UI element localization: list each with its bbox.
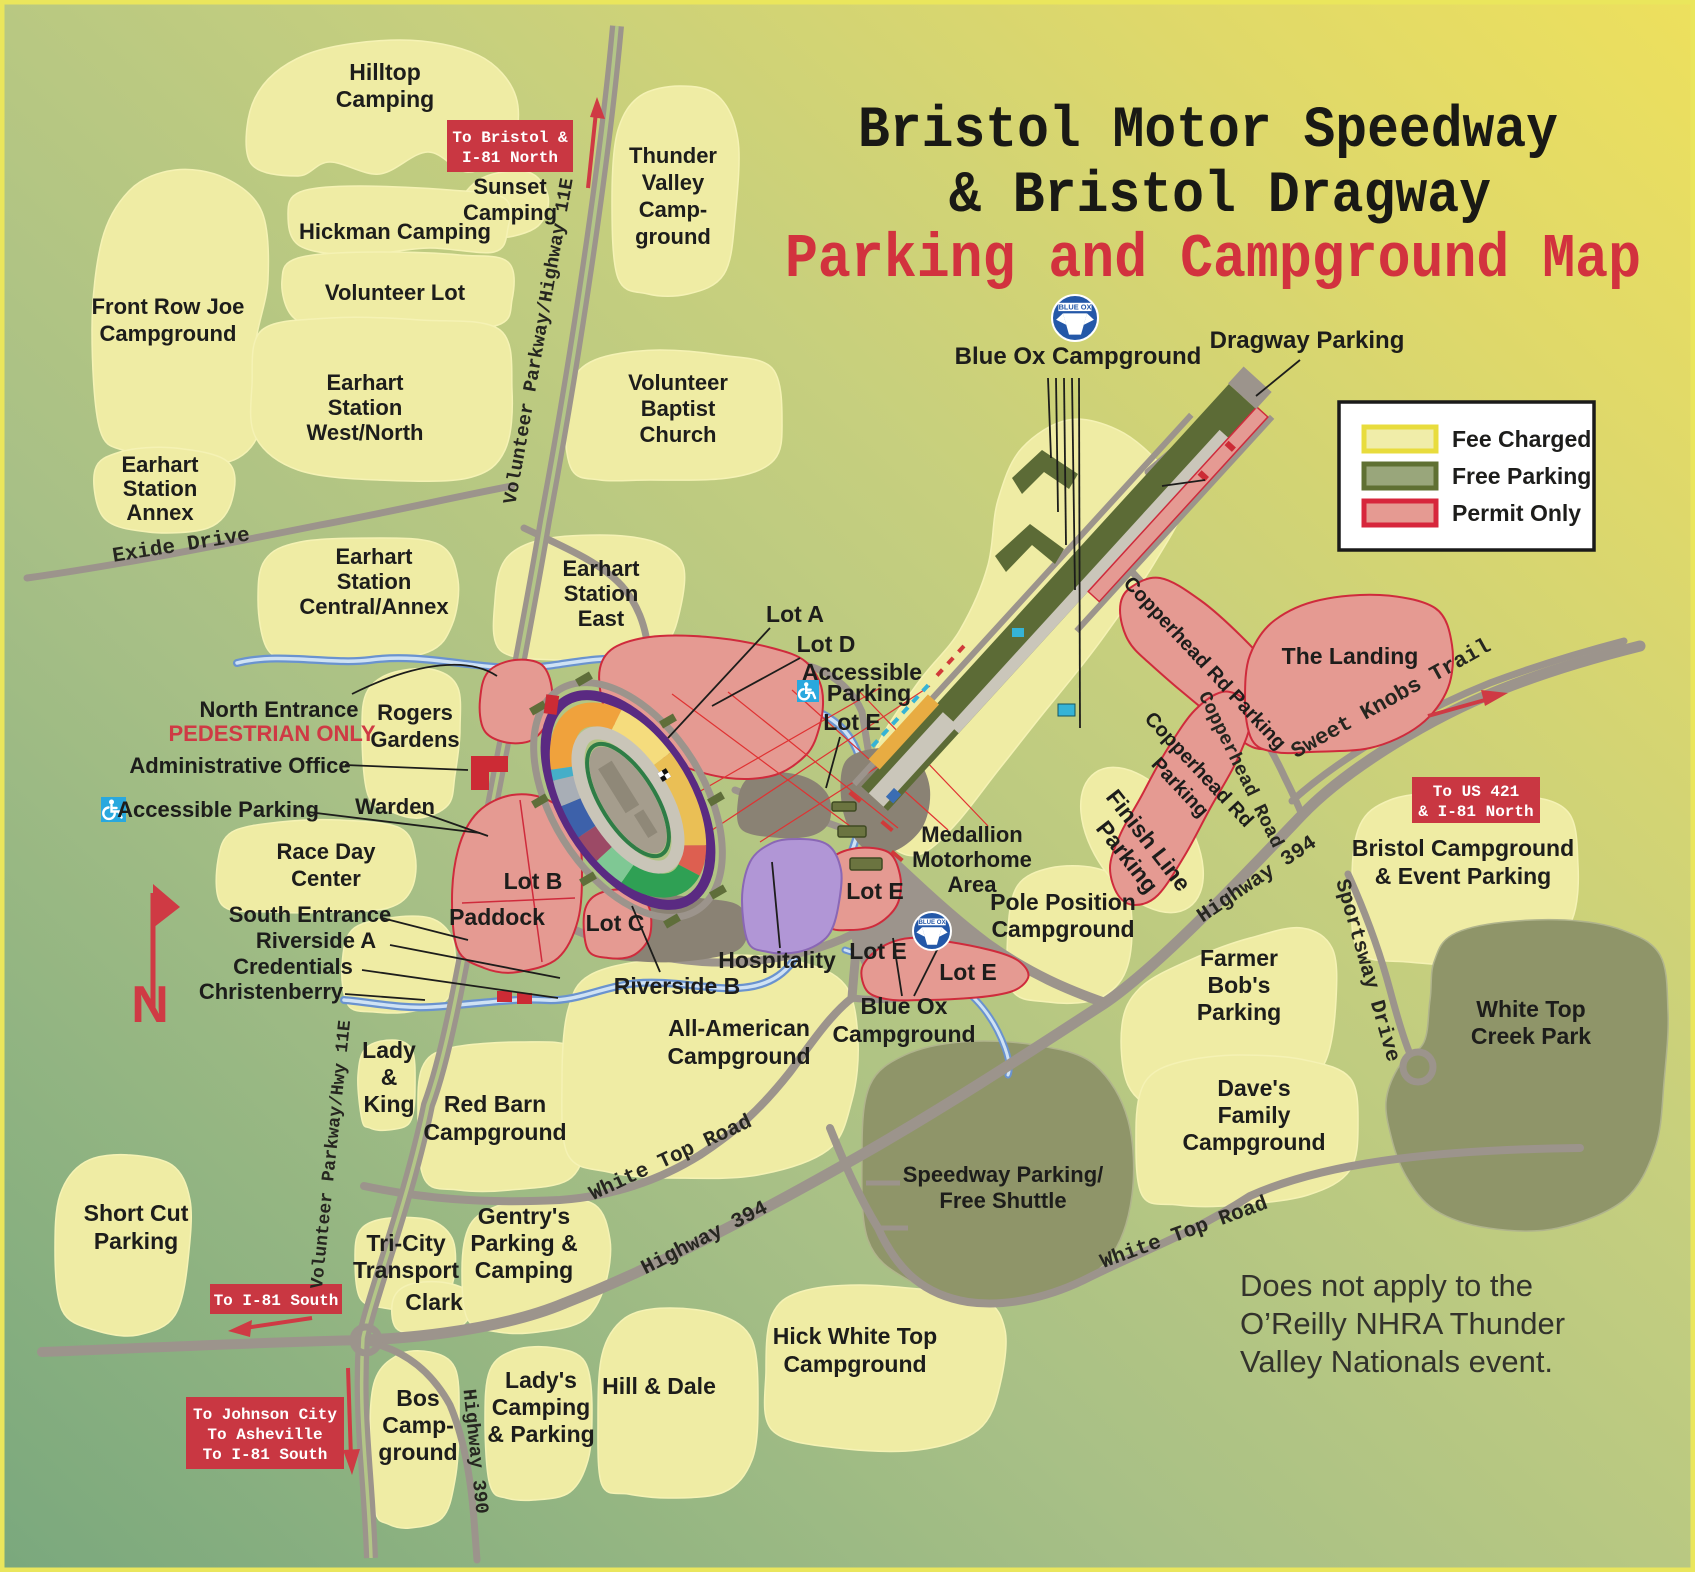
svg-text:Fee Charged: Fee Charged bbox=[1452, 426, 1591, 452]
svg-text:Lot C: Lot C bbox=[586, 910, 645, 936]
svg-text:Christenberry: Christenberry bbox=[199, 979, 344, 1004]
svg-text:FarmerBob'sParking: FarmerBob'sParking bbox=[1197, 945, 1281, 1025]
svg-text:Lot B: Lot B bbox=[504, 868, 563, 894]
svg-text:EarhartStationAnnex: EarhartStationAnnex bbox=[121, 452, 199, 525]
svg-text:White TopCreek Park: White TopCreek Park bbox=[1471, 996, 1591, 1049]
svg-text:Credentials: Credentials bbox=[233, 954, 353, 979]
svg-text:Riverside A: Riverside A bbox=[256, 928, 376, 953]
svg-text:Accessible Parking: Accessible Parking bbox=[117, 797, 319, 822]
svg-text:Paddock: Paddock bbox=[449, 904, 545, 930]
svg-text:VolunteerBaptistChurch: VolunteerBaptistChurch bbox=[628, 370, 728, 447]
svg-text:Free Parking: Free Parking bbox=[1452, 463, 1591, 489]
svg-text:To US 421: To US 421 bbox=[1433, 783, 1519, 801]
svg-text:Hill & Dale: Hill & Dale bbox=[602, 1373, 716, 1399]
svg-text:The Landing: The Landing bbox=[1282, 643, 1419, 669]
svg-text:Parking and Campground Map: Parking and Campground Map bbox=[785, 224, 1641, 295]
svg-text:Lot E: Lot E bbox=[823, 709, 881, 735]
svg-text:Gentry'sParking &Camping: Gentry'sParking &Camping bbox=[470, 1203, 577, 1283]
svg-text:South Entrance: South Entrance bbox=[229, 902, 392, 927]
svg-text:& Bristol Dragway: & Bristol Dragway bbox=[949, 164, 1491, 229]
svg-text:To I-81 South: To I-81 South bbox=[203, 1446, 328, 1464]
svg-text:To Johnson City: To Johnson City bbox=[193, 1406, 337, 1424]
svg-text:Hospitality: Hospitality bbox=[718, 947, 836, 973]
svg-text:Lot E: Lot E bbox=[846, 878, 904, 904]
svg-text:Tri-CityTransport: Tri-CityTransport bbox=[353, 1230, 459, 1283]
svg-text:Lot E: Lot E bbox=[939, 959, 997, 985]
svg-text:Clark: Clark bbox=[405, 1289, 463, 1315]
svg-text:Warden: Warden bbox=[355, 794, 435, 819]
svg-text:Pole PositionCampground: Pole PositionCampground bbox=[990, 889, 1136, 942]
svg-text:Lot E: Lot E bbox=[849, 938, 907, 964]
svg-text:Does not apply to theO’Reilly: Does not apply to theO’Reilly NHRA Thund… bbox=[1240, 1268, 1565, 1379]
svg-text:To I-81 South: To I-81 South bbox=[214, 1292, 339, 1310]
svg-text:I-81 North: I-81 North bbox=[462, 149, 558, 167]
svg-text:Dragway Parking: Dragway Parking bbox=[1210, 327, 1405, 354]
svg-text:N: N bbox=[131, 976, 169, 1034]
svg-text:Blue Ox Campground: Blue Ox Campground bbox=[955, 343, 1202, 370]
svg-text:Hickman Camping: Hickman Camping bbox=[299, 219, 491, 244]
svg-text:Volunteer Lot: Volunteer Lot bbox=[325, 280, 466, 305]
svg-text:Lot D: Lot D bbox=[797, 631, 856, 657]
svg-text:PEDESTRIAN ONLY: PEDESTRIAN ONLY bbox=[168, 721, 375, 746]
svg-text:To Bristol &: To Bristol & bbox=[452, 129, 568, 147]
svg-text:SunsetCamping: SunsetCamping bbox=[463, 174, 557, 225]
svg-text:Riverside B: Riverside B bbox=[614, 973, 741, 999]
svg-text:Lot A: Lot A bbox=[766, 601, 824, 627]
svg-text:HilltopCamping: HilltopCamping bbox=[336, 59, 434, 112]
svg-text:North Entrance: North Entrance bbox=[200, 697, 359, 722]
svg-text:BLUE OX: BLUE OX bbox=[918, 919, 946, 926]
svg-text:Bristol Motor Speedway: Bristol Motor Speedway bbox=[858, 99, 1558, 164]
svg-text:Administrative Office: Administrative Office bbox=[129, 753, 350, 778]
svg-text:To Asheville: To Asheville bbox=[207, 1426, 322, 1444]
svg-text:Permit Only: Permit Only bbox=[1452, 500, 1581, 526]
svg-text:Parking: Parking bbox=[827, 680, 911, 706]
svg-text:& I-81 North: & I-81 North bbox=[1418, 803, 1533, 821]
svg-text:BLUE OX: BLUE OX bbox=[1059, 303, 1092, 312]
